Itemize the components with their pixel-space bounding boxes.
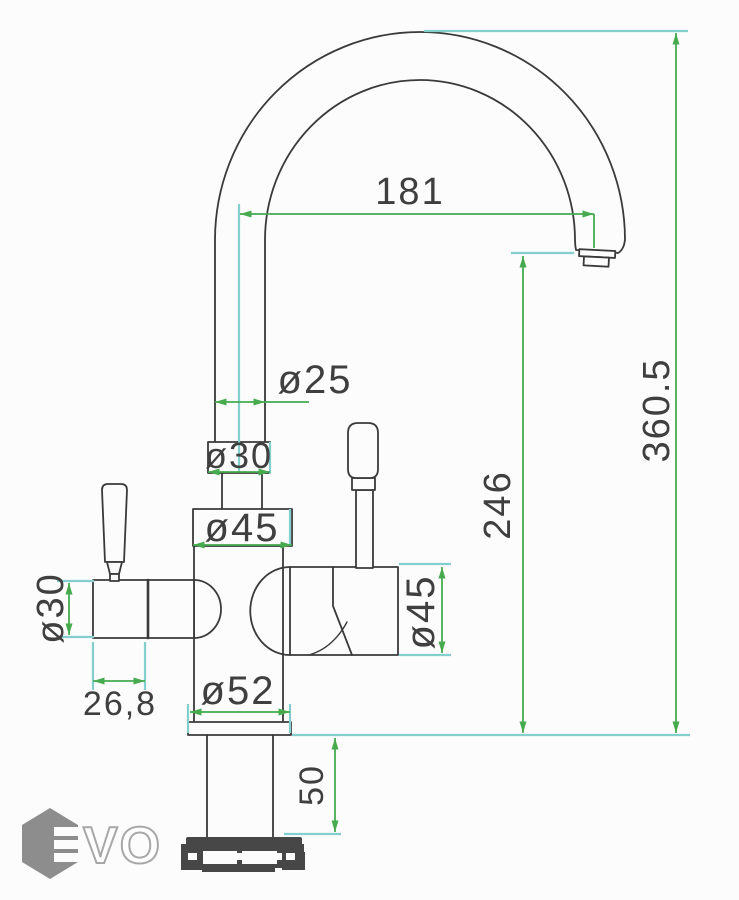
base-flange bbox=[188, 722, 291, 735]
label-valve-length: 26,8 bbox=[83, 685, 157, 723]
evo-e-bars-icon bbox=[54, 827, 82, 862]
spout-arc bbox=[215, 32, 625, 446]
evo-watermark-logo: VO bbox=[22, 808, 162, 879]
left-handle-stem bbox=[110, 574, 119, 581]
mounting-nut bbox=[181, 837, 305, 872]
right-handle-stem bbox=[356, 490, 373, 568]
aerator-nozzle bbox=[584, 256, 609, 266]
nut-slot-left-small bbox=[188, 853, 197, 860]
valve-length-extensions bbox=[93, 642, 145, 690]
label-shank-length: 50 bbox=[293, 764, 331, 806]
nut-bottom-tab bbox=[202, 866, 275, 872]
faucet-outline bbox=[93, 32, 625, 872]
nut-top-plate bbox=[186, 837, 302, 845]
left-handle-neck bbox=[107, 562, 122, 574]
evo-e-bar-bottom bbox=[54, 853, 82, 862]
aerator bbox=[579, 249, 616, 267]
label-left-valve-diameter: ø30 bbox=[30, 572, 72, 643]
evo-e-bar-top bbox=[54, 827, 82, 836]
right-valve-body bbox=[290, 567, 398, 655]
label-body-collar-diameter: ø45 bbox=[205, 506, 280, 550]
evo-e-bar-middle bbox=[54, 840, 82, 849]
left-valve-dome bbox=[194, 580, 221, 638]
pipe-section bbox=[222, 473, 262, 509]
evo-letters: VO bbox=[83, 817, 162, 875]
label-reach: 181 bbox=[375, 171, 444, 213]
nut-slot-right-small bbox=[286, 853, 295, 860]
left-handle-grip bbox=[102, 484, 127, 562]
faucet-dimension-drawing: 181 ø25 ø30 ø45 360.5 246 ø30 26,8 ø45 ø… bbox=[0, 0, 739, 900]
left-valve-body bbox=[93, 580, 194, 638]
technical-drawing-page: 181 ø25 ø30 ø45 360.5 246 ø30 26,8 ø45 ø… bbox=[0, 0, 739, 900]
label-base-diameter: ø52 bbox=[201, 669, 276, 713]
nut-slot-center-left bbox=[203, 851, 237, 864]
label-total-height: 360.5 bbox=[636, 357, 678, 462]
label-upper-collar-diameter: ø30 bbox=[205, 435, 273, 476]
label-right-valve-diameter: ø45 bbox=[399, 575, 443, 650]
mounting-shank bbox=[207, 735, 273, 837]
label-tube-diameter: ø25 bbox=[278, 358, 353, 402]
label-spout-height: 246 bbox=[477, 470, 519, 539]
right-handle-grip bbox=[348, 423, 378, 478]
right-handle-base bbox=[352, 478, 375, 490]
right-valve-dome bbox=[250, 567, 290, 655]
nut-slot-center-right bbox=[242, 851, 277, 864]
